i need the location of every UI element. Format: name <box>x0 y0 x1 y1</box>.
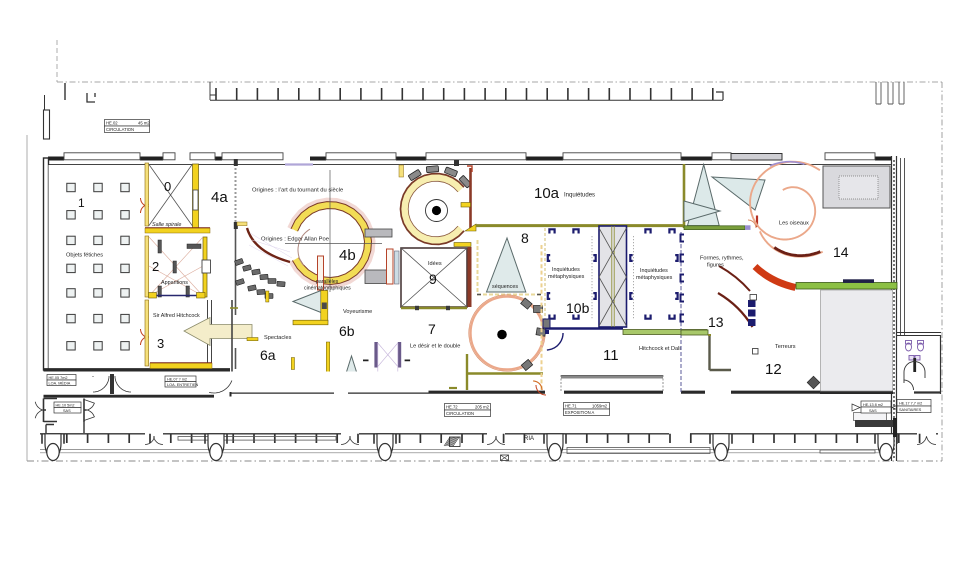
svg-text:SAS: SAS <box>63 409 71 413</box>
svg-text:10a: 10a <box>534 185 560 202</box>
svg-text:Inquiétudes: Inquiétudes <box>564 193 595 199</box>
svg-text:Inquiétudes: Inquiétudes <box>640 268 668 274</box>
svg-text:Origines : Edgar Allan Poe: Origines : Edgar Allan Poe <box>261 237 329 243</box>
svg-text:13: 13 <box>708 314 724 330</box>
svg-text:3: 3 <box>157 336 164 351</box>
svg-text:Sir Alfred Hitchcock: Sir Alfred Hitchcock <box>153 313 200 319</box>
svg-text:1: 1 <box>78 196 85 210</box>
svg-text:Inquiétudes: Inquiétudes <box>552 267 580 273</box>
svg-text:Voyeurisme: Voyeurisme <box>343 309 372 315</box>
svg-text:9: 9 <box>429 271 437 287</box>
svg-text:205 m2: 205 m2 <box>475 405 490 410</box>
svg-text:Apparitions: Apparitions <box>161 280 188 286</box>
svg-text:parallèles: parallèles <box>316 279 339 285</box>
svg-text:2: 2 <box>152 259 159 274</box>
svg-text:figures: figures <box>707 263 724 269</box>
svg-text:Le désir et le double: Le désir et le double <box>410 344 460 350</box>
svg-text:LOA. MÉDIA: LOA. MÉDIA <box>49 380 71 385</box>
svg-text:CIRCULATION: CIRCULATION <box>106 127 134 132</box>
svg-text:HE.02: HE.02 <box>106 121 118 126</box>
svg-text:Hitchcock et Dali: Hitchcock et Dali <box>639 346 681 352</box>
svg-text:0: 0 <box>164 179 171 194</box>
svg-text:4a: 4a <box>211 189 228 206</box>
svg-text:RIA: RIA <box>524 436 534 442</box>
svg-text:Salle spirale: Salle spirale <box>152 222 181 228</box>
svg-text:LOA. ENTRETIEN: LOA. ENTRETIEN <box>167 383 198 387</box>
svg-text:Terreurs: Terreurs <box>775 344 796 350</box>
svg-text:métaphysiques: métaphysiques <box>636 275 673 281</box>
svg-text:Spectacles: Spectacles <box>264 335 292 341</box>
svg-text:métaphysiques: métaphysiques <box>548 274 585 280</box>
svg-text:Formes, rythmes,: Formes, rythmes, <box>700 256 744 262</box>
svg-text:14: 14 <box>833 244 849 260</box>
svg-text:4b: 4b <box>339 247 356 264</box>
svg-text:HE.05 7m2: HE.05 7m2 <box>49 376 68 380</box>
svg-text:HE.72: HE.72 <box>446 405 458 410</box>
svg-text:Les oiseaux: Les oiseaux <box>779 221 809 227</box>
svg-text:Objets fétiches: Objets fétiches <box>66 253 103 259</box>
svg-text:6b: 6b <box>339 323 355 339</box>
svg-text:HE.17 7,7 m2: HE.17 7,7 m2 <box>899 402 922 406</box>
svg-text:12: 12 <box>765 361 782 378</box>
svg-text:HE.07 ? m2: HE.07 ? m2 <box>167 378 187 382</box>
svg-text:HE.10 5m2: HE.10 5m2 <box>56 404 75 408</box>
svg-text:SAS: SAS <box>869 409 877 413</box>
svg-text:HE.13 8 m2: HE.13 8 m2 <box>863 403 883 407</box>
svg-text:HE.71: HE.71 <box>565 404 577 409</box>
svg-text:6a: 6a <box>260 347 276 363</box>
svg-text:45 m2: 45 m2 <box>138 121 150 126</box>
svg-text:7: 7 <box>428 321 436 337</box>
svg-text:Origines : l’art du tournant d: Origines : l’art du tournant du siècle <box>252 188 343 194</box>
svg-text:11: 11 <box>603 347 619 364</box>
svg-text:8: 8 <box>521 230 529 246</box>
svg-text:1059m2: 1059m2 <box>592 404 608 409</box>
svg-text:SANITAIRES: SANITAIRES <box>899 408 922 412</box>
svg-text:10b: 10b <box>566 300 590 316</box>
svg-text:séquences: séquences <box>492 284 518 290</box>
svg-text:EXPOSITION A: EXPOSITION A <box>565 410 595 415</box>
svg-text:Idées: Idées <box>428 261 442 267</box>
svg-text:CIRCULATION: CIRCULATION <box>446 411 474 416</box>
